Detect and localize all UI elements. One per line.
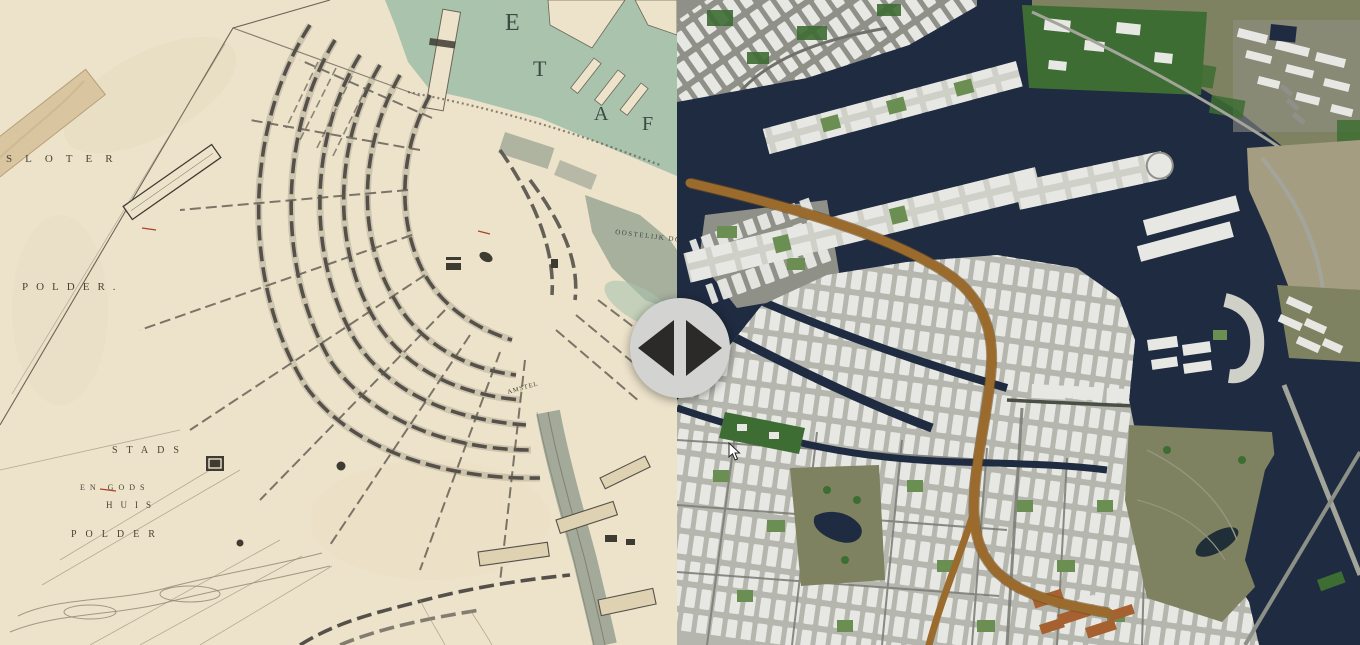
label-ij-t: T (533, 56, 547, 81)
label-sloter: SLOTER (6, 153, 126, 165)
after-map-pane[interactable] (677, 0, 1360, 645)
label-huis: HUIS (106, 500, 159, 510)
label-en-gods: EN GODS (80, 483, 149, 492)
oosterpark (790, 465, 885, 586)
slider-arrows (630, 298, 730, 398)
comparison-stage: SLOTER POLDER. STADS EN GODS HUIS POLDER… (0, 0, 1360, 645)
modern-map (677, 0, 1360, 645)
label-ij-a: A (594, 103, 609, 125)
label-ij-e: E (505, 10, 520, 36)
before-map-pane[interactable]: SLOTER POLDER. STADS EN GODS HUIS POLDER… (0, 0, 677, 645)
historical-map: SLOTER POLDER. STADS EN GODS HUIS POLDER… (0, 0, 677, 645)
comparison-slider-handle[interactable] (630, 298, 730, 398)
label-polder-s: POLDER (71, 529, 164, 540)
label-stads: STADS (112, 445, 188, 456)
label-polder-nw: POLDER. (22, 281, 124, 293)
right-arrow-icon (686, 320, 722, 376)
label-ij-f: F (642, 113, 653, 135)
left-arrow-icon (638, 320, 674, 376)
